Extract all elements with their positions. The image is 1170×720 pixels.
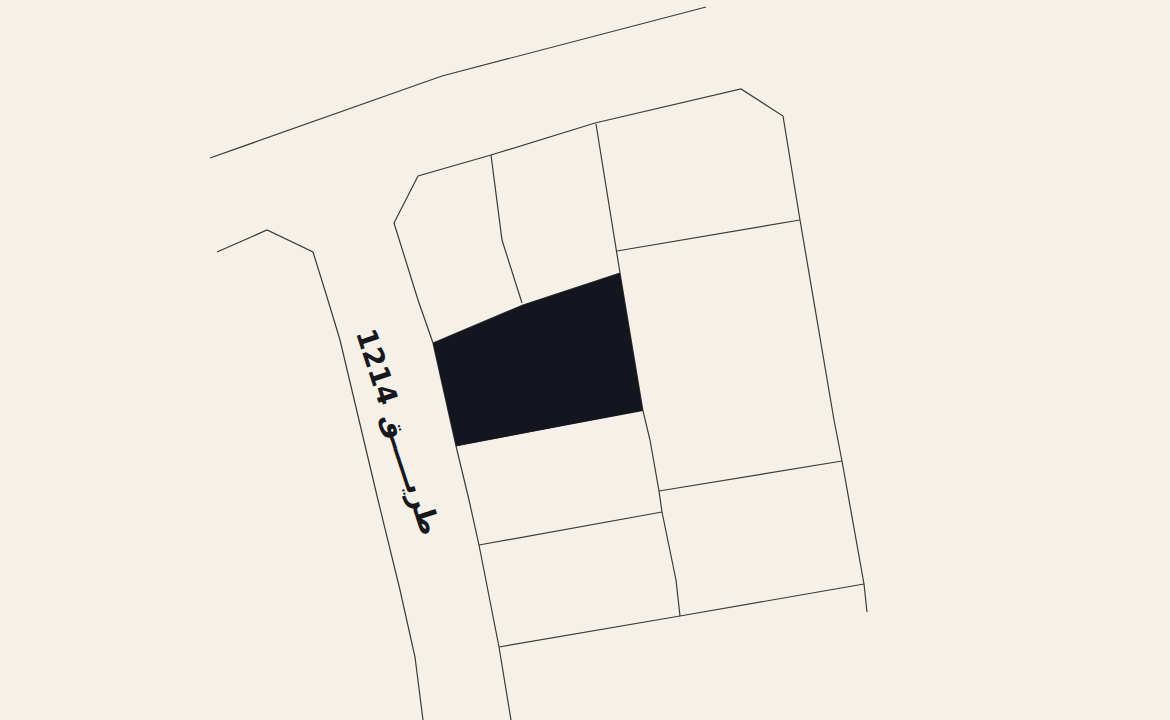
middle-column-divider	[479, 512, 662, 545]
parcel-map-svg[interactable]	[0, 0, 1170, 720]
lower-cross-divider	[499, 584, 864, 647]
north-road-edge	[210, 7, 706, 158]
parcel-map[interactable]: طريـــــق 1214	[0, 0, 1170, 720]
top-middle-divider	[491, 155, 522, 303]
highlighted-parcel[interactable]	[433, 273, 643, 446]
right-column-divider-1	[617, 220, 800, 251]
west-road-edge	[217, 230, 423, 720]
right-column-divider-2	[659, 461, 842, 491]
